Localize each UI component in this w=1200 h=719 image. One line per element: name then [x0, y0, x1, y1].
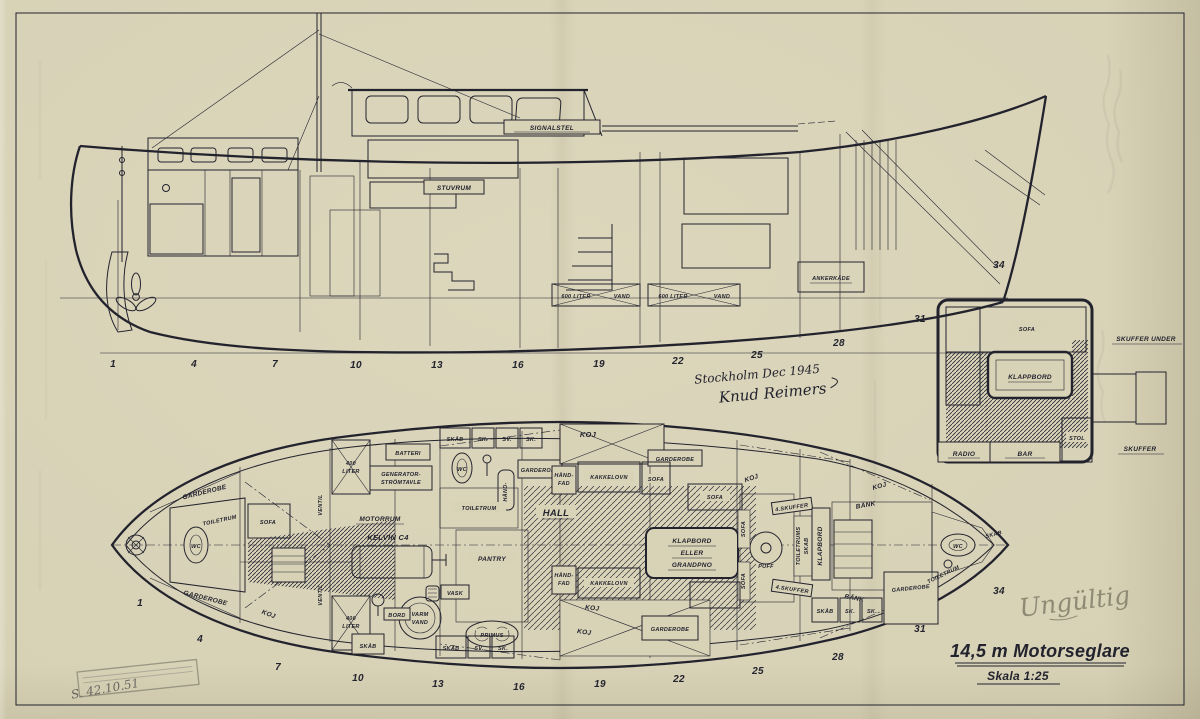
- plan-label-haandfad-v: HÅND-: [502, 482, 509, 501]
- station-number: 16: [512, 360, 524, 371]
- side-elevation: SIGNALSTEL STUVRUM 600 LITER VAND 600 LI…: [60, 13, 1046, 409]
- plan-label-koj: KOJ: [872, 481, 888, 492]
- plan-label-klapbord-v: KLAPBORD: [817, 526, 824, 565]
- station-number: 1: [110, 359, 116, 370]
- propeller: [114, 273, 158, 313]
- plan-label-table1: KLAPBORD: [672, 538, 711, 545]
- signalstel-box: SIGNALSTEL: [504, 120, 600, 134]
- plan-label-sk: SK.: [478, 437, 488, 443]
- plan-label-generator2: STRÖMTAVLE: [381, 479, 421, 486]
- inset-label-bar: BAR: [1018, 451, 1033, 458]
- inset-bar-shelf: BAR: [990, 442, 1060, 462]
- plan-label-table2: ELLER: [681, 550, 704, 557]
- plan-label-wc: WC: [457, 467, 467, 473]
- title-block: 14,5 m Motorseglare Skala 1:25: [950, 641, 1130, 684]
- label-signalstel: SIGNALSTEL: [530, 125, 574, 132]
- plan-label-toiletrum: TOILETRUM: [462, 506, 497, 512]
- plan-label-puff: PUFF: [758, 564, 774, 570]
- station-number: 7: [275, 662, 281, 673]
- plan-label-toiletrums: TOILETRUMS: [796, 527, 802, 566]
- plan-label-batteri: BATTERI: [395, 451, 421, 457]
- plan-label-vask: VASK: [447, 591, 464, 597]
- plan-label-koj: KOJ: [744, 473, 760, 484]
- drawing-scale: Skala 1:25: [987, 669, 1049, 683]
- water-tank-1: 600 LITER VAND: [552, 284, 640, 306]
- station-number: 31: [914, 314, 926, 325]
- station-number: 1: [137, 598, 143, 609]
- label-tank2-content: VAND: [714, 294, 730, 300]
- plan-label-generator1: GENERATOR-: [381, 472, 420, 478]
- station-number: 34: [993, 586, 1005, 597]
- plan-label-haandfad2: FAD: [558, 581, 570, 587]
- plan-label-baenk: BÄNK: [855, 499, 877, 511]
- plan-label-kakkelovn: KAKKELOVN: [590, 581, 628, 587]
- station-number: 4: [196, 634, 203, 645]
- plan-label-sofa: SOFA: [741, 521, 747, 537]
- plan-label-haandfad1: HÅND-: [554, 472, 573, 479]
- drawing-title: 14,5 m Motorseglare: [950, 641, 1130, 661]
- inset-klappbord-table: KLAPPBORD: [988, 352, 1072, 398]
- plan-label-400: 400: [345, 461, 356, 467]
- stuvrum-box: STUVRUM: [424, 180, 484, 194]
- station-number: 31: [914, 624, 926, 635]
- plan-label-engine: KELVIN C4: [367, 533, 409, 542]
- stern-flagpole: [120, 146, 125, 262]
- plan-klapbord-table: KLAPBORD ELLER GRANDPNO: [646, 528, 738, 578]
- plan-label-skaab: SKÅB: [817, 608, 834, 615]
- plan-aft-stairs: [834, 520, 872, 578]
- plan-label-vand: VAND: [412, 620, 428, 626]
- plan-label-garderobe: GARDEROBE: [651, 627, 689, 633]
- station-number: 13: [432, 679, 444, 690]
- inset-label-radio: RADIO: [953, 451, 975, 458]
- inset-label-stol: STOL: [1069, 436, 1085, 442]
- station-number: 22: [672, 674, 685, 685]
- pencil-note: Ungültig: [1018, 580, 1132, 624]
- rudder: [107, 200, 132, 332]
- plan-label-sk: SK.: [498, 646, 508, 652]
- plan-label-ventil: VENTIL: [318, 494, 324, 516]
- station-number: 25: [750, 350, 763, 361]
- station-number: 28: [832, 338, 845, 349]
- plan-cockpit: KLAPBORD BÄNK BÄNK KOJ SKÅB SK. SK. GARD…: [812, 481, 938, 624]
- hull-profile: [60, 96, 1046, 353]
- plan-label-koj: KOJ: [261, 609, 277, 620]
- deckhouse-inset: SOFA KLAPPBORD RADIO BAR STOL SKUFFER UN…: [938, 300, 1182, 462]
- plan-label-hall: HALL: [543, 508, 570, 519]
- handwritten-signature: Knud Reimers: [717, 379, 827, 406]
- anchor-chain-box: ANKERKÄDE: [798, 262, 864, 292]
- plan-label-ventil: VENTIL: [318, 584, 324, 606]
- plan-saloon: HALL KOJ GARDEROBE KOJ KAKKELOVN SOFA HÅ…: [524, 424, 813, 656]
- station-number: 22: [671, 356, 684, 367]
- plan-label-pantry: PANTRY: [478, 556, 506, 563]
- signature-block: Stockholm Dec 1945 Knud Reimers: [694, 360, 839, 408]
- plan-sink: VASK: [426, 585, 469, 601]
- inset-radio-shelf: RADIO: [938, 442, 990, 462]
- plan-label-sofa: SOFA: [648, 477, 664, 483]
- plan-label-koj: KOJ: [585, 604, 600, 612]
- plan-label-motorrum: MOTORRUM: [359, 516, 401, 523]
- plan-label-skab: SKAB: [804, 538, 810, 555]
- plan-label-sofa: SOFA: [260, 520, 276, 526]
- plan-label-table3: GRANDPNO: [672, 562, 712, 569]
- label-tank2-volume: 600 LITER: [658, 294, 687, 300]
- archive-stamp: S. 42.10.51: [68, 659, 199, 701]
- plan-view: GARDEROBE GARDEROBE WC TOILETRUM SOFA KO…: [112, 422, 1008, 693]
- plan-label-haandfad2: FAD: [558, 481, 570, 487]
- label-tank1-content: VAND: [614, 294, 630, 300]
- station-number: 16: [513, 682, 525, 693]
- plan-label-skaab: SKÅB: [447, 436, 464, 443]
- station-number: 19: [593, 359, 605, 370]
- plan-label-varm: VARM: [412, 612, 429, 618]
- plan-label-skaab: SKÅB: [360, 643, 377, 650]
- station-number: 34: [993, 260, 1005, 271]
- label-tank1-volume: 600 LITER: [561, 294, 590, 300]
- plan-label-sv: SV.: [502, 437, 511, 443]
- plan-label-bord: BORD: [388, 613, 405, 619]
- station-number: 28: [831, 652, 844, 663]
- plan-label-wc: WC: [953, 544, 963, 550]
- inset-label-klappbord: KLAPPBORD: [1008, 374, 1052, 381]
- blueprint-sheet: SIGNALSTEL STUVRUM 600 LITER VAND 600 LI…: [0, 0, 1200, 719]
- station-number: 4: [190, 359, 197, 370]
- station-number: 10: [352, 673, 364, 684]
- station-number: 25: [751, 666, 764, 677]
- plan-label-sk: SK.: [845, 609, 855, 615]
- plan-label-sofa: SOFA: [707, 495, 723, 501]
- label-stuvrum: STUVRUM: [437, 185, 472, 192]
- station-number: 10: [350, 360, 362, 371]
- plan-label-garderobe: GARDEROBE: [182, 484, 228, 502]
- plan-companionway-stairs: [272, 548, 305, 582]
- plan-label-wc: WC: [191, 544, 201, 550]
- plan-label-sk: SK.: [867, 609, 877, 615]
- plan-label-sv: SV.: [474, 646, 483, 652]
- plan-label-sofa: SOFA: [741, 573, 747, 589]
- plan-label-liter: LITER: [342, 469, 359, 475]
- plan-label-haandfad1: HÅND-: [554, 572, 573, 579]
- plan-label-toiletrum: TOILETRUM: [202, 514, 237, 527]
- inset-label-sofa: SOFA: [1019, 327, 1035, 333]
- inset-label-skuffer-under: SKUFFER UNDER: [1116, 336, 1176, 343]
- station-number: 19: [594, 679, 606, 690]
- drawing-canvas: SIGNALSTEL STUVRUM 600 LITER VAND 600 LI…: [0, 0, 1200, 719]
- plan-aft-toilet: WC TOILETRUM SKÅB: [927, 512, 1003, 585]
- plan-label-skaab: SKÅB: [443, 645, 460, 652]
- side-station-numbers: 1 4 7 10 13 16 19 22 25 28 31 34: [110, 260, 1005, 371]
- plan-label-koj: KOJ: [580, 430, 597, 439]
- station-number: 13: [431, 360, 443, 371]
- plan-label-sk: SK.: [526, 437, 536, 443]
- label-ankerkade: ANKERKÄDE: [811, 275, 850, 282]
- water-tank-2: 600 LITER VAND: [648, 284, 740, 306]
- plan-label-liter: LITER: [342, 624, 359, 630]
- inset-label-skuffer: SKUFFER: [1124, 446, 1157, 453]
- plan-label-kakkelovn: KAKKELOVN: [590, 475, 628, 481]
- plan-label-400: 400: [345, 616, 356, 622]
- station-number: 7: [272, 359, 278, 370]
